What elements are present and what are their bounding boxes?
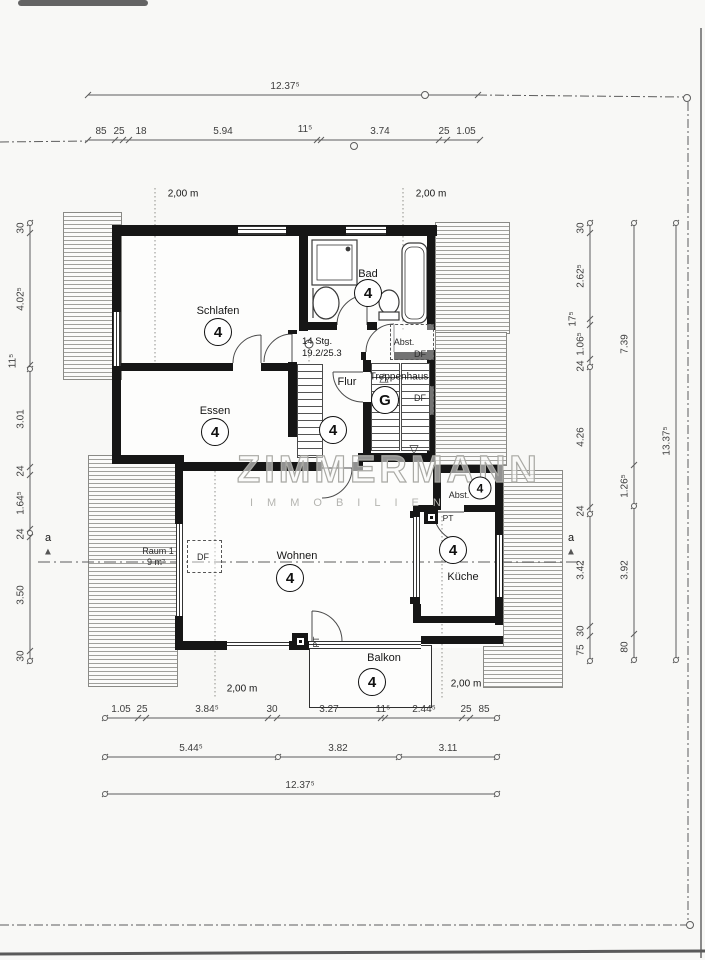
room-label-abst-upper: Abst. xyxy=(394,337,415,347)
dim-label: 25 xyxy=(460,704,471,715)
height-marker: 2,00 m xyxy=(451,679,482,690)
scan-smudge xyxy=(18,0,148,6)
dim-label: 3.01 xyxy=(16,409,27,428)
dim-label: 1.06⁵ xyxy=(576,332,587,356)
df-label: DF xyxy=(197,552,209,562)
sink xyxy=(313,287,339,319)
dim-label: 30 xyxy=(576,222,587,233)
dim-label: 24 xyxy=(16,465,27,476)
wall-segment xyxy=(288,330,297,334)
unit-badge: 4 xyxy=(439,536,467,564)
room-label-schlafen: Schlafen xyxy=(197,305,240,317)
wall-segment xyxy=(175,641,227,650)
dim-label: 12.37⁵ xyxy=(270,81,299,92)
dim-label: 3.82 xyxy=(328,743,347,754)
shower xyxy=(312,240,357,285)
room-label-raum1: Raum 1 xyxy=(142,546,174,556)
section-marker-a: a xyxy=(45,532,51,544)
watermark-name: ZIMMERMANN xyxy=(237,449,541,492)
stair-down-arrow-icon: ▽ xyxy=(409,442,418,456)
df-label: DF xyxy=(414,349,426,359)
pt-duct-symbol xyxy=(424,510,438,524)
unit-badge: 4 xyxy=(276,564,304,592)
unit-badge-g: G xyxy=(371,386,399,414)
dim-label: 30 xyxy=(16,222,27,233)
unit-badge: 4 xyxy=(319,416,347,444)
bathtub xyxy=(402,243,427,323)
flur-stairs xyxy=(297,364,323,458)
dim-label: 24 xyxy=(576,360,587,371)
dim-label: 18 xyxy=(135,126,146,137)
room-label-kueche: Küche xyxy=(447,571,478,583)
dim-label: 1.05 xyxy=(456,126,475,137)
dim-label: 12.37⁵ xyxy=(285,780,314,791)
stairs-note: 19.2/25.3 xyxy=(302,348,342,359)
dim-label: 3.84⁵ xyxy=(195,704,219,715)
glass-partition xyxy=(413,517,420,597)
wall-segment xyxy=(410,597,420,604)
dim-label: 11⁵ xyxy=(8,354,19,369)
room-label-flur: Flur xyxy=(338,376,357,388)
dim-label: 30 xyxy=(576,625,587,636)
wall-segment xyxy=(299,322,337,330)
dim-label: 24 xyxy=(16,528,27,539)
window xyxy=(238,226,286,235)
dim-label: 4.26 xyxy=(576,427,587,446)
dim-label: 3.27 xyxy=(319,704,338,715)
dim-label: 3.92 xyxy=(620,560,631,579)
dim-label: 25 xyxy=(438,126,449,137)
wall-segment xyxy=(413,604,421,623)
dim-label: 4.02⁵ xyxy=(16,287,27,311)
wall-segment xyxy=(288,362,297,437)
height-marker: 2,00 m xyxy=(416,189,447,200)
dim-label: 2.62⁵ xyxy=(576,264,587,288)
page-edge-line xyxy=(700,28,702,958)
dim-label: 11⁵ xyxy=(376,704,391,715)
unit-badge: 4 xyxy=(469,477,492,500)
room-label-abst-lower: Abst. xyxy=(449,490,470,500)
dim-label: 3.42 xyxy=(576,560,587,579)
dim-label: 1.64⁵ xyxy=(16,491,27,515)
unit-badge: 4 xyxy=(201,418,229,446)
dim-label: 5.94 xyxy=(213,126,232,137)
dim-label: 5.44⁵ xyxy=(179,743,203,754)
dim-label: 30 xyxy=(16,650,27,661)
wall-segment xyxy=(367,322,377,330)
wall-segment xyxy=(299,225,308,331)
dim-label: 17⁵ xyxy=(568,311,579,326)
wall-segment xyxy=(421,636,503,644)
window xyxy=(113,312,121,366)
wall-segment xyxy=(464,505,500,512)
watermark-subtitle: IMMOBILIEN xyxy=(250,497,455,509)
dim-label: 24 xyxy=(576,505,587,516)
toilet xyxy=(379,290,399,320)
wall-segment xyxy=(361,352,366,360)
wall-segment xyxy=(261,363,288,371)
dim-label: 30 xyxy=(266,704,277,715)
height-marker: 2,00 m xyxy=(227,684,258,695)
stairs-note: 14 Stg. xyxy=(302,336,332,347)
floorplan-scan-page: ZIMMERMANN IMMOBILIEN Schlafen Bad Essen… xyxy=(0,0,705,960)
unit-badge: 4 xyxy=(354,279,382,307)
df-label: DF xyxy=(414,393,426,403)
dim-label: 85 xyxy=(95,126,106,137)
dim-label: 7.39 xyxy=(620,334,631,353)
wall-segment xyxy=(363,360,371,372)
balcony-door-window xyxy=(309,641,421,649)
pt-label: PT xyxy=(311,637,321,648)
room-label-essen: Essen xyxy=(200,405,231,417)
stair-up-arrow-icon: △ xyxy=(379,370,388,384)
window xyxy=(227,642,289,649)
window xyxy=(176,524,183,616)
section-arrow-icon: ▲ xyxy=(566,547,576,558)
dim-label: 1.26⁵ xyxy=(620,474,631,498)
dim-label: 75 xyxy=(576,644,587,655)
room-label-balkon: Balkon xyxy=(367,652,401,664)
dim-label: 25 xyxy=(113,126,124,137)
wall-segment xyxy=(427,225,435,330)
dim-label: 11⁵ xyxy=(298,124,313,135)
wall-segment xyxy=(112,455,184,464)
wall-segment xyxy=(175,462,183,524)
raum1-area: 9 m² xyxy=(147,557,165,567)
wall-segment xyxy=(363,402,371,453)
section-arrow-icon: ▲ xyxy=(43,547,53,558)
pt-duct-symbol xyxy=(292,633,308,649)
height-marker: 2,00 m xyxy=(168,189,199,200)
window xyxy=(496,535,502,597)
dim-label: 13.37⁵ xyxy=(662,426,673,455)
dim-label: 3.11 xyxy=(439,743,458,754)
window xyxy=(346,226,386,235)
dim-label: 1.05 xyxy=(111,704,130,715)
unit-badge: 4 xyxy=(204,318,232,346)
unit-badge: 4 xyxy=(358,668,386,696)
dim-label: 85 xyxy=(478,704,489,715)
dim-label: 3.50 xyxy=(16,585,27,604)
room-label-wohnen: Wohnen xyxy=(277,550,318,562)
dim-label: 80 xyxy=(620,641,631,652)
dim-label: 2.44⁵ xyxy=(412,704,436,715)
pt-label: PT xyxy=(443,513,454,523)
section-marker-a: a xyxy=(568,532,574,544)
wall-segment xyxy=(413,616,502,623)
wall-segment xyxy=(112,363,233,371)
dim-label: 3.74 xyxy=(370,126,389,137)
dim-label: 25 xyxy=(136,704,147,715)
